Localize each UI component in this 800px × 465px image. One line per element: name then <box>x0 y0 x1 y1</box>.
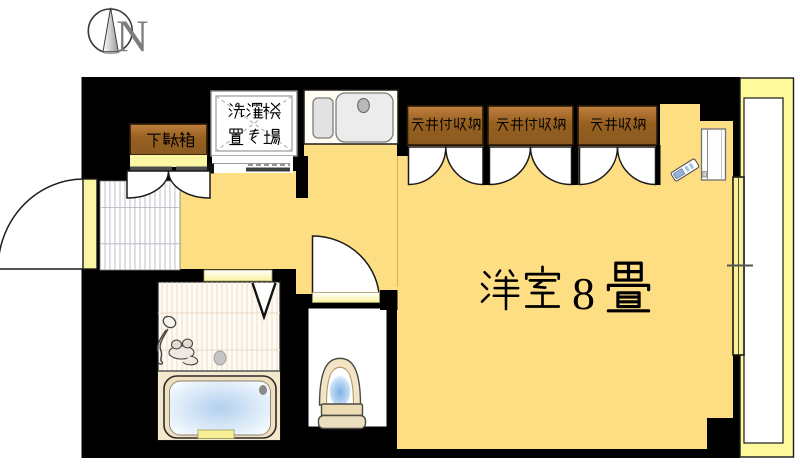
svg-text:8: 8 <box>572 268 595 319</box>
svg-text:N: N <box>116 12 149 62</box>
